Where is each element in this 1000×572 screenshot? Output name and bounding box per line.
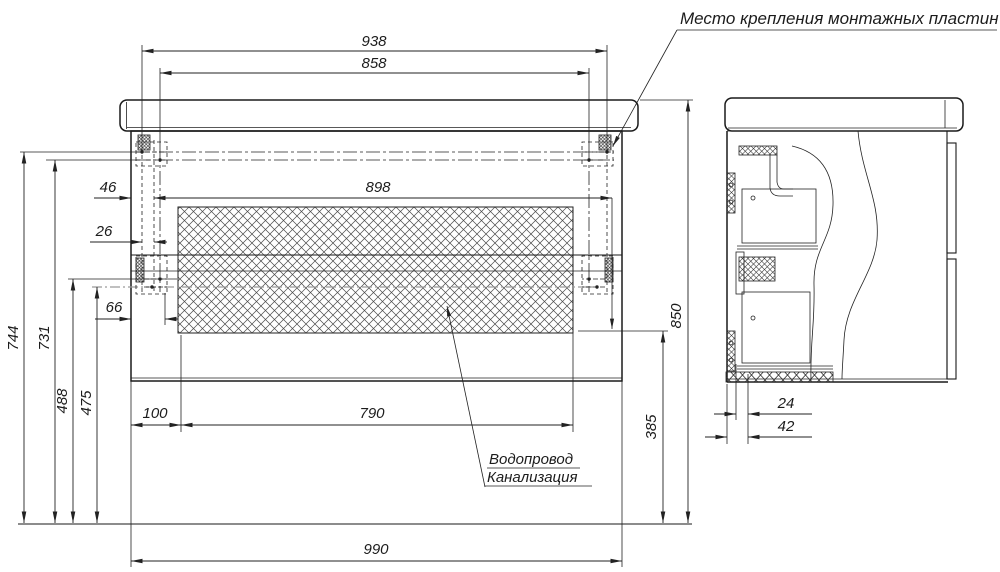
front-drawer-panel-hatch: [178, 207, 573, 333]
dim-790: 790: [181, 405, 573, 425]
dim-100: 100: [131, 405, 181, 425]
vanity-installation-drawing: 938 858 46 898 26 66: [0, 0, 1000, 572]
dim-475-label: 475: [78, 390, 95, 416]
front-countertop: [120, 100, 638, 131]
dim-744: 744: [5, 152, 24, 523]
mounting-plate-lower-right: [582, 256, 613, 294]
technical-drawing-page: 938 858 46 898 26 66: [0, 0, 1000, 572]
dim-898: 898: [154, 179, 612, 198]
mounting-plate-lower-left: [136, 256, 167, 294]
dim-385: 385: [643, 331, 663, 523]
side-drawer-box-upper: [742, 189, 816, 243]
dim-26-label: 26: [95, 223, 113, 240]
side-drawer-front-upper: [947, 143, 956, 253]
break-curve-1: [792, 146, 833, 381]
dim-488: 488: [54, 279, 73, 523]
side-plate-lower: [727, 331, 735, 371]
dim-731-label: 731: [36, 325, 53, 350]
dim-66-label: 66: [106, 299, 123, 316]
side-drawer-front-lower: [947, 259, 956, 379]
side-view: [725, 98, 963, 382]
dim-24-label: 24: [777, 395, 795, 412]
side-bottom-rail: [726, 372, 833, 382]
dim-858: 858: [160, 55, 589, 73]
dim-898-label: 898: [365, 179, 391, 196]
dim-385-label: 385: [643, 414, 660, 440]
dim-488-label: 488: [54, 388, 71, 414]
basin-rim-section: [739, 146, 777, 155]
dim-46-label: 46: [100, 179, 117, 196]
dim-744-label: 744: [5, 325, 22, 350]
dim-42: 42: [705, 418, 812, 437]
dim-100-label: 100: [142, 405, 168, 422]
water-label: Водопровод: [489, 451, 573, 468]
dim-938: 938: [142, 33, 607, 51]
mounting-plate-upper-right: [582, 135, 613, 166]
side-countertop: [725, 98, 963, 131]
dim-475: 475: [78, 287, 97, 523]
dim-66: 66: [95, 299, 178, 319]
dim-850: 850: [668, 100, 688, 523]
side-drawer-box-lower: [742, 292, 810, 363]
side-plate-upper: [727, 173, 735, 213]
dim-46: 46: [94, 179, 131, 198]
callout-mounting-plates: Место крепления монтажных пластин: [613, 9, 999, 146]
dim-731: 731: [36, 160, 55, 523]
break-curve-2: [842, 131, 877, 379]
dim-990: 990: [131, 541, 622, 561]
dim-990-label: 990: [363, 541, 389, 558]
dim-24: 24: [714, 395, 812, 414]
mounting-plates-label: Место крепления монтажных пластин: [680, 9, 999, 28]
front-view: [68, 45, 638, 381]
dim-850-label: 850: [668, 303, 685, 329]
dim-42-label: 42: [778, 418, 795, 435]
sewer-label: Канализация: [487, 469, 578, 486]
mounting-plate-upper-left: [136, 135, 167, 166]
mounting-plates-leader: [613, 30, 677, 146]
dim-790-label: 790: [359, 405, 385, 422]
dim-858-label: 858: [361, 55, 387, 72]
side-siphon-section: [739, 257, 775, 281]
dim-938-label: 938: [361, 33, 387, 50]
dim-26: 26: [90, 223, 167, 242]
